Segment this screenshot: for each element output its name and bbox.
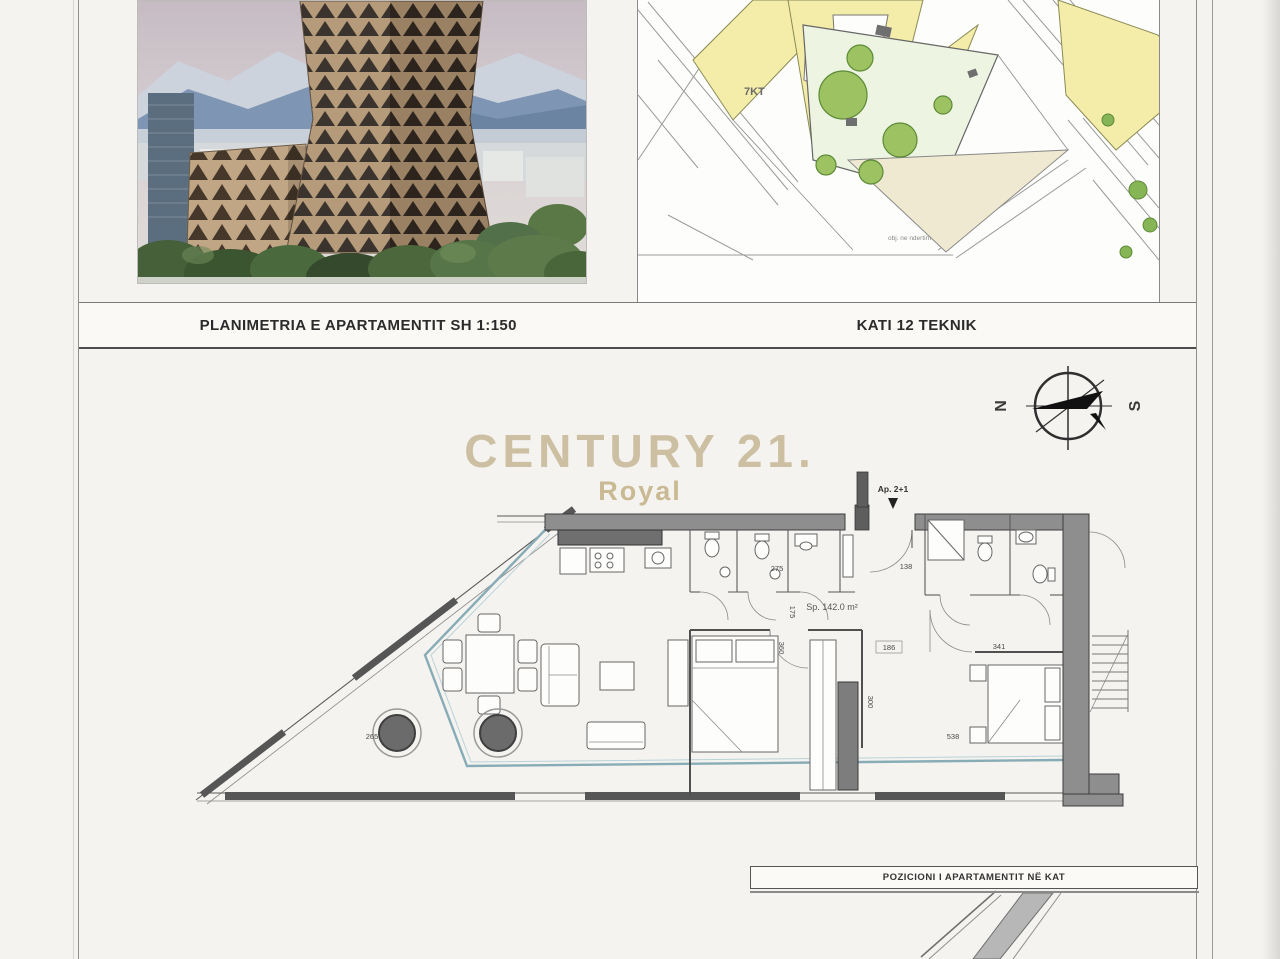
building-photo-art [138, 1, 586, 283]
apartment-plan: Ap. 2+1 Sp. 142.0 m² 2652751383601751863… [196, 472, 1128, 806]
compass-north-label: N [993, 400, 1010, 412]
title-row: PLANIMETRIA E APARTAMENTIT SH 1:150 KATI… [79, 302, 1196, 349]
dimension-label: 538 [947, 732, 960, 741]
dimension-label: 265 [366, 732, 379, 741]
watermark: CENTURY 21. Royal [0, 428, 1280, 505]
dimension-label: 275 [771, 564, 784, 573]
footer-divider [750, 891, 1199, 893]
left-title: PLANIMETRIA E APARTAMENTIT SH 1:150 [79, 303, 638, 347]
dimension-label: 186 [883, 643, 896, 652]
site-plan-zone-label: 7KT [744, 86, 765, 98]
dimension-label: 138 [900, 562, 913, 571]
watermark-brand: CENTURY 21. [0, 428, 1280, 474]
round-pouf [373, 709, 522, 757]
building-photo [137, 0, 587, 284]
right-title: KATI 12 TEKNIK [638, 303, 1197, 347]
dimension-label: 175 [788, 606, 797, 619]
scanned-sheet: 7KT obj. ne ndertim PLANIMETRIA E APARTA… [0, 0, 1280, 959]
footer-label: POZICIONI I APARTAMENTIT NË KAT [883, 872, 1065, 883]
area-label: Sp. 142.0 m² [806, 602, 858, 612]
dimension-label: 300 [866, 696, 875, 709]
dimension-label: 341 [993, 642, 1006, 651]
site-plan-art: 7KT obj. ne ndertim [638, 0, 1159, 302]
watermark-sub: Royal [0, 478, 1280, 505]
dimension-label: 360 [777, 642, 786, 655]
dimension-labels: 265275138360175186341300538 [366, 562, 1006, 741]
site-plan: 7KT obj. ne ndertim [637, 0, 1160, 302]
compass-south-label: S [1127, 400, 1144, 411]
site-plan-note-label: obj. ne ndertim [888, 235, 931, 242]
footer-box: POZICIONI I APARTAMENTIT NË KAT [750, 866, 1198, 889]
key-plan-fragment [921, 891, 1061, 959]
